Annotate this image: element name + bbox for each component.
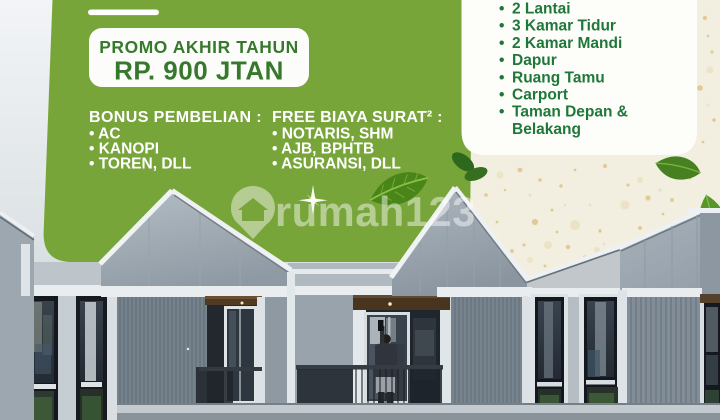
svg-text:3 Kamar Tidur: 3 Kamar Tidur: [512, 18, 616, 35]
svg-text:PROMO AKHIR TAHUN: PROMO AKHIR TAHUN: [99, 37, 299, 57]
svg-text:•: •: [499, 104, 504, 121]
svg-text:rumah123: rumah123: [275, 188, 476, 235]
svg-text:•: •: [499, 18, 504, 35]
svg-text:2 Lantai: 2 Lantai: [512, 1, 571, 18]
svg-text:•: •: [499, 1, 504, 18]
svg-text:Dapur: Dapur: [512, 52, 557, 69]
svg-text:FREE BIAYA SURAT² :: FREE BIAYA SURAT² :: [272, 109, 443, 126]
svg-text:Taman Depan &: Taman Depan &: [512, 104, 628, 121]
svg-text:•: •: [499, 69, 504, 86]
svg-text:•: •: [499, 87, 504, 104]
svg-text:2 Kamar Mandi: 2 Kamar Mandi: [512, 35, 622, 52]
svg-text:Ruang Tamu: Ruang Tamu: [512, 69, 605, 86]
svg-text:• ASURANSI, DLL: • ASURANSI, DLL: [272, 156, 401, 173]
svg-text:•: •: [499, 35, 504, 52]
svg-text:Belakang: Belakang: [512, 121, 581, 138]
svg-text:RP. 900 JTAN: RP. 900 JTAN: [114, 56, 284, 86]
svg-text:BONUS PEMBELIAN :: BONUS PEMBELIAN :: [89, 109, 262, 126]
svg-text:•: •: [499, 52, 504, 69]
svg-text:Carport: Carport: [512, 87, 568, 104]
svg-text:• TOREN, DLL: • TOREN, DLL: [89, 156, 191, 173]
